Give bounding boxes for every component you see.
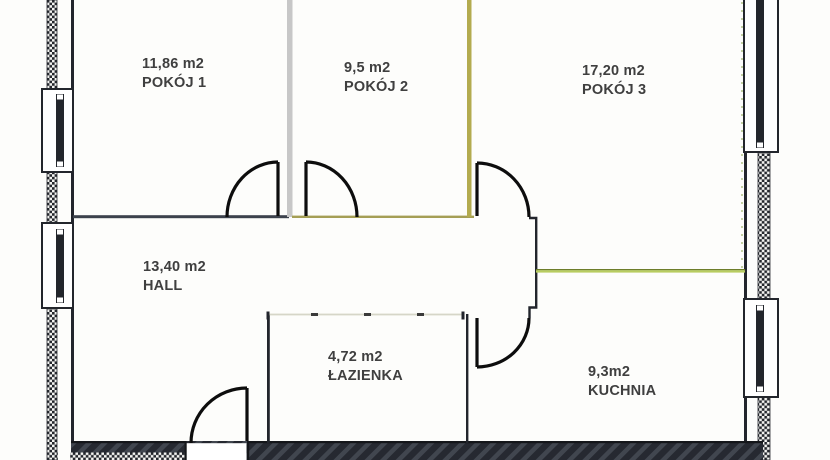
label-pokoj3-area: 17,20 m2 bbox=[582, 63, 645, 79]
entrance-doorway-gap bbox=[187, 443, 247, 460]
label-kuchnia-name: KUCHNIA bbox=[588, 383, 657, 399]
floor-plan-canvas: 11,86 m2 POKÓJ 1 9,5 m2 POKÓJ 2 17,20 m2… bbox=[0, 0, 830, 460]
label-pokoj2-name: POKÓJ 2 bbox=[344, 77, 408, 95]
label-pokoj1-area: 11,86 m2 bbox=[142, 56, 204, 72]
wall-lazienka-left bbox=[267, 315, 270, 443]
window-symbol-hall bbox=[42, 223, 73, 308]
label-pokoj2-area: 9,5 m2 bbox=[344, 60, 390, 76]
label-lazienka-area: 4,72 m2 bbox=[328, 349, 383, 365]
label-hall-name: HALL bbox=[143, 278, 182, 294]
wall-pokoj1-pokoj2 bbox=[287, 0, 293, 217]
wall-pokoj3-kuchnia bbox=[536, 269, 745, 273]
label-pokoj1-name: POKÓJ 1 bbox=[142, 73, 206, 91]
room-pokoj-2 bbox=[292, 0, 467, 215]
label-pokoj3-name: POKÓJ 3 bbox=[582, 80, 646, 98]
wall-hall-top-left bbox=[73, 215, 289, 218]
window-symbol-pokoj1 bbox=[42, 89, 73, 172]
window-symbol-pokoj3 bbox=[744, 0, 778, 152]
wall-lazienka-kuchnia bbox=[466, 314, 468, 443]
wall-pokoj2-pokoj3 bbox=[467, 0, 472, 217]
label-kuchnia-area: 9,3m2 bbox=[588, 364, 630, 380]
label-hall-area: 13,40 m2 bbox=[143, 259, 206, 275]
window-symbol-kuchnia bbox=[744, 299, 778, 397]
wall-hall-top-right bbox=[292, 216, 474, 218]
floor-plan: 11,86 m2 POKÓJ 1 9,5 m2 POKÓJ 2 17,20 m2… bbox=[0, 0, 830, 460]
room-pokoj-1 bbox=[75, 0, 287, 215]
bottom-exterior-wall bbox=[57, 441, 763, 460]
label-lazienka-name: ŁAZIENKA bbox=[328, 368, 403, 384]
